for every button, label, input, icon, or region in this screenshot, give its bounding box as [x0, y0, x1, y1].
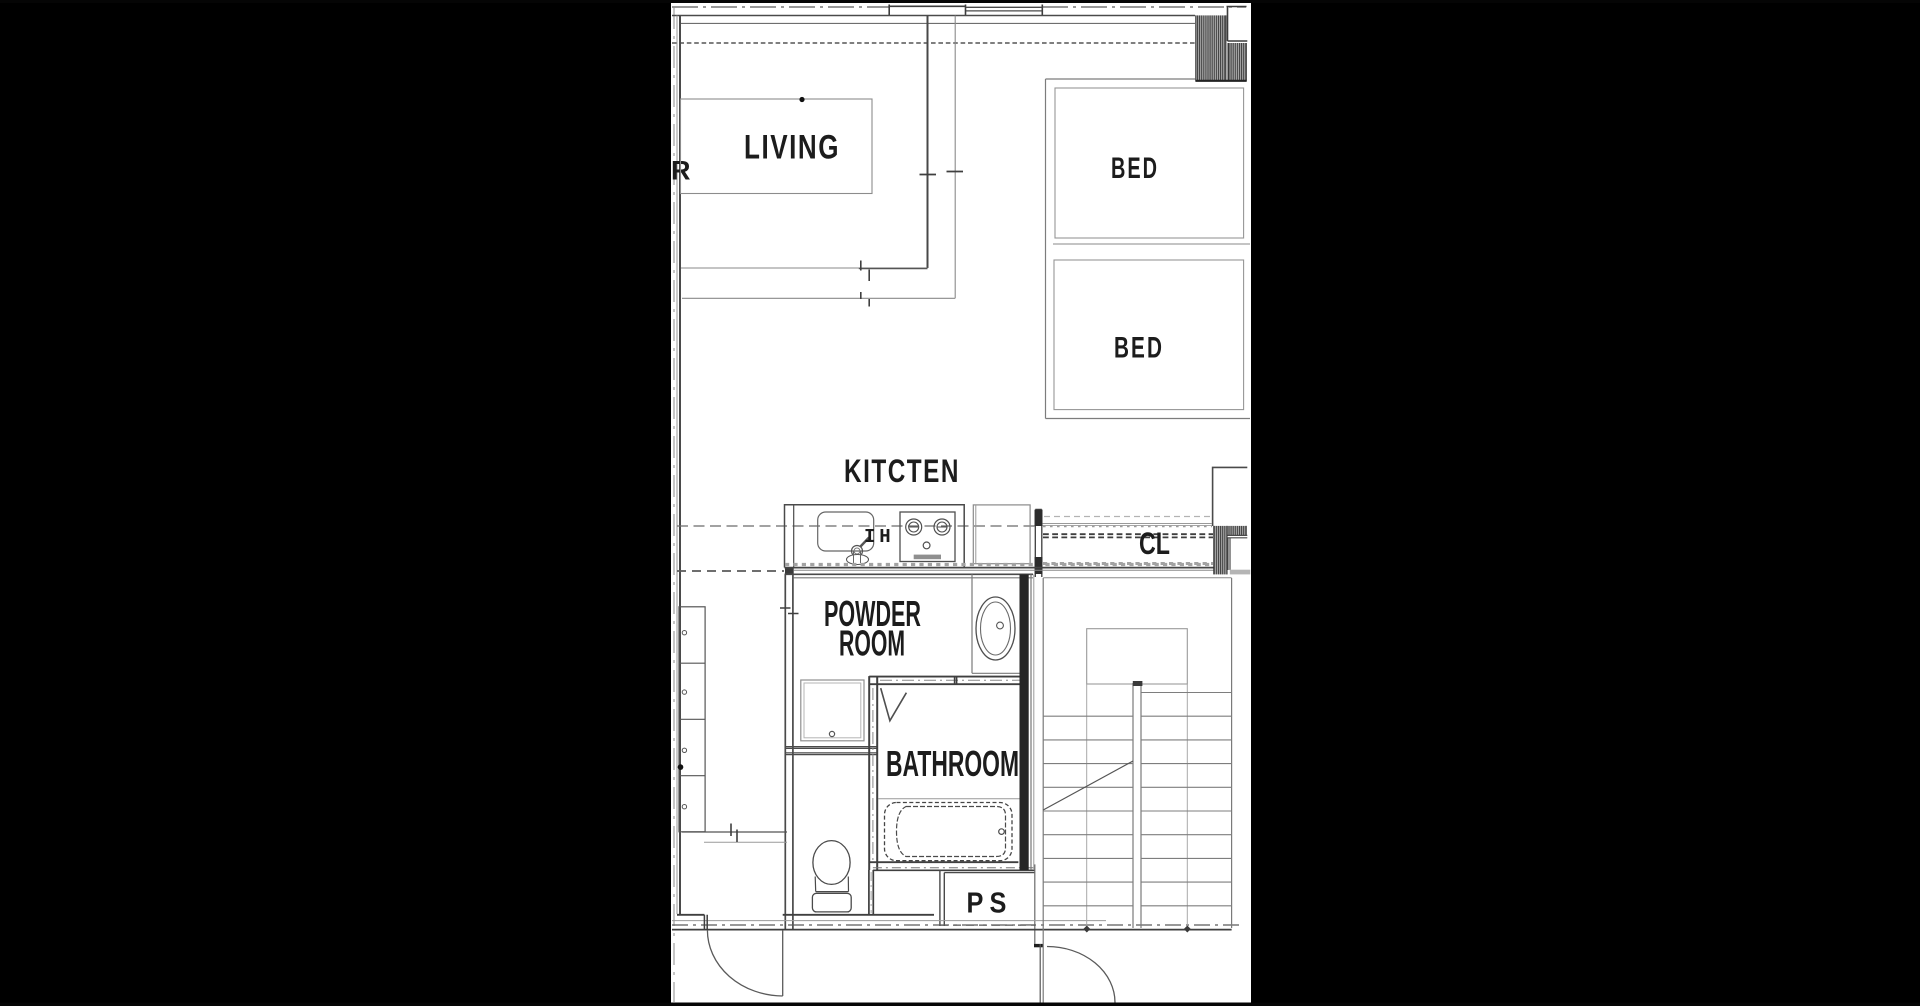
- svg-text:PS: PS: [967, 888, 1013, 920]
- svg-text:ROOM: ROOM: [839, 623, 905, 664]
- svg-text:H: H: [879, 526, 890, 548]
- svg-text:BATHROOM: BATHROOM: [886, 743, 1019, 784]
- svg-text:KITCTEN: KITCTEN: [844, 453, 960, 489]
- svg-text:BED: BED: [1111, 152, 1159, 185]
- svg-text:CL: CL: [1139, 525, 1170, 561]
- svg-text:LIVING: LIVING: [744, 129, 840, 167]
- svg-text:I: I: [864, 526, 875, 548]
- svg-text:BED: BED: [1114, 332, 1164, 365]
